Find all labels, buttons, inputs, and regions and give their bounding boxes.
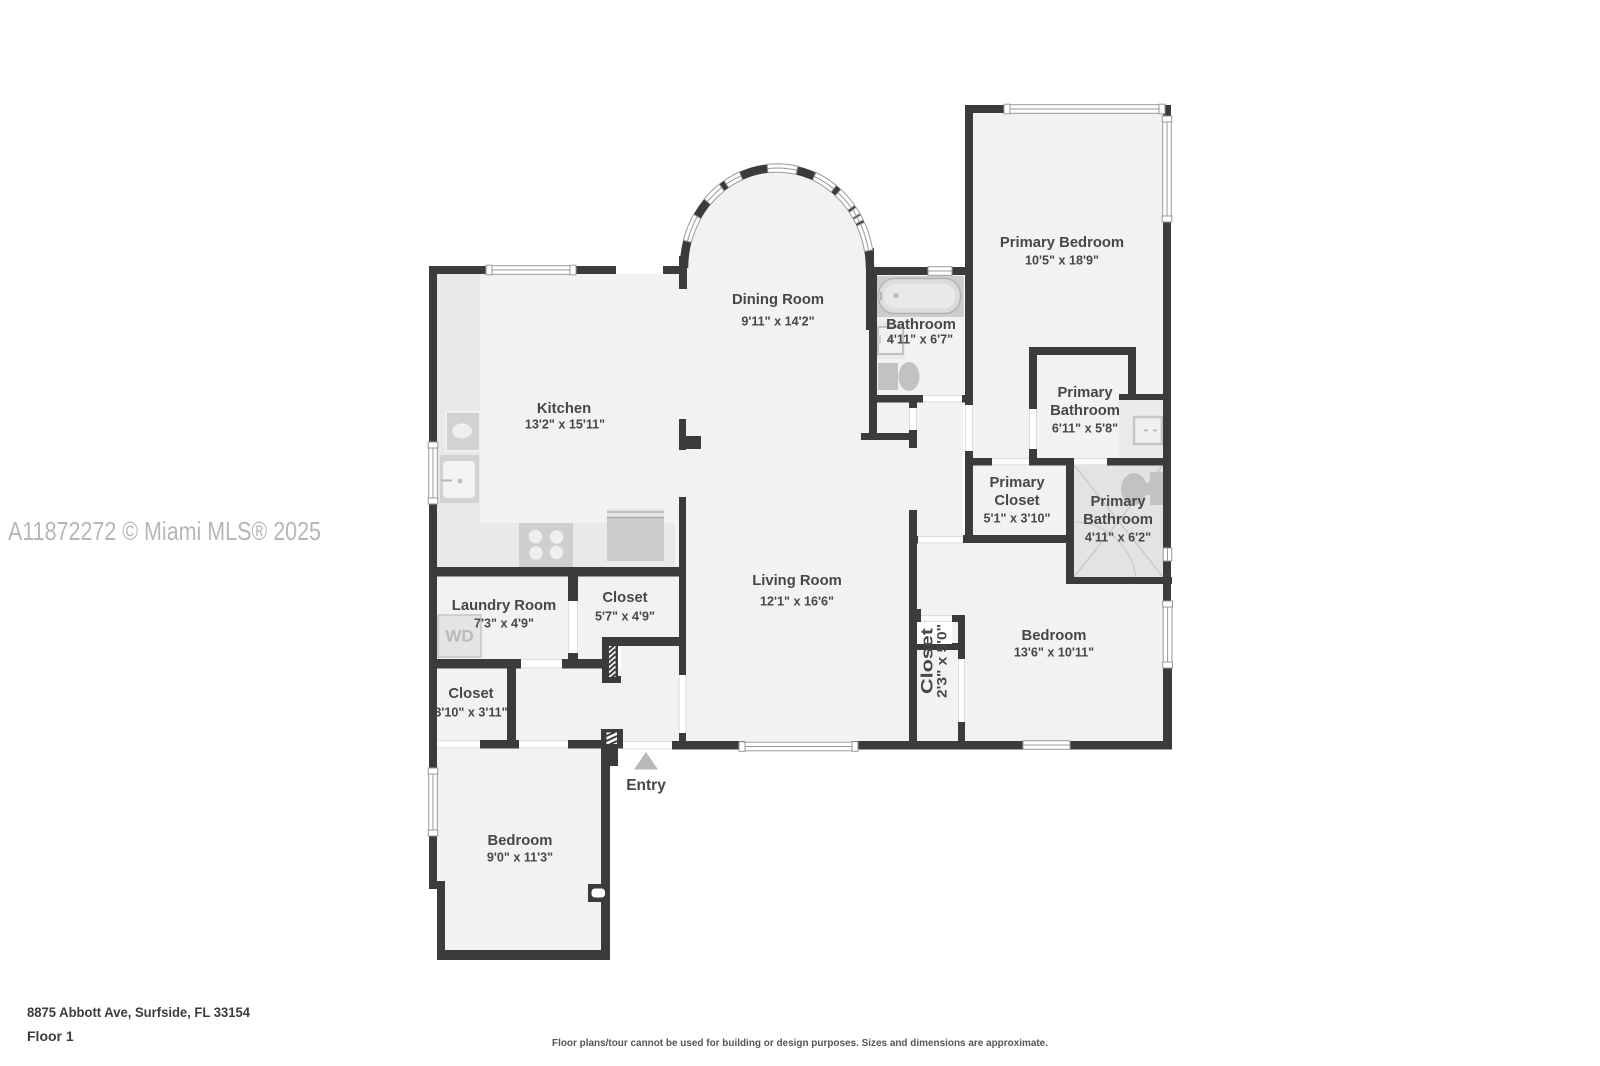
svg-text:12'1" x 16'6": 12'1" x 16'6" <box>760 594 834 608</box>
svg-text:6'11" x 5'8": 6'11" x 5'8" <box>1052 421 1118 435</box>
svg-text:5'7" x 4'9": 5'7" x 4'9" <box>595 609 655 623</box>
svg-text:Floor plans/tour cannot be use: Floor plans/tour cannot be used for buil… <box>552 1037 1048 1049</box>
svg-text:Bathroom: Bathroom <box>886 317 956 333</box>
svg-text:7'3" x 4'9": 7'3" x 4'9" <box>474 616 534 630</box>
svg-text:10'5" x 18'9": 10'5" x 18'9" <box>1025 253 1099 267</box>
svg-text:Closet: Closet <box>994 493 1039 509</box>
svg-text:Primary Bedroom: Primary Bedroom <box>1000 235 1124 251</box>
svg-text:Primary: Primary <box>1057 385 1113 401</box>
svg-text:2'3" x 5'0": 2'3" x 5'0" <box>935 624 950 698</box>
svg-text:Laundry Room: Laundry Room <box>452 598 556 614</box>
svg-text:4'11" x 6'2": 4'11" x 6'2" <box>1085 530 1151 544</box>
svg-text:Floor 1: Floor 1 <box>27 1028 74 1044</box>
svg-text:13'2" x 15'11": 13'2" x 15'11" <box>525 417 605 431</box>
svg-text:5'1" x 3'10": 5'1" x 3'10" <box>984 511 1051 525</box>
svg-text:3'10" x 3'11": 3'10" x 3'11" <box>434 705 507 719</box>
svg-text:Closet: Closet <box>602 590 647 606</box>
svg-text:Bedroom: Bedroom <box>488 833 553 849</box>
svg-text:4'11" x 6'7": 4'11" x 6'7" <box>887 332 953 346</box>
svg-text:13'6" x 10'11": 13'6" x 10'11" <box>1014 645 1094 659</box>
svg-text:Bedroom: Bedroom <box>1022 628 1087 644</box>
svg-text:Closet: Closet <box>448 686 493 702</box>
svg-text:WD: WD <box>445 626 473 645</box>
svg-text:Primary: Primary <box>1090 494 1146 510</box>
svg-text:Bathroom: Bathroom <box>1050 403 1120 419</box>
svg-text:Bathroom: Bathroom <box>1083 512 1153 528</box>
svg-text:A11872272 © Miami MLS® 2025: A11872272 © Miami MLS® 2025 <box>8 516 321 546</box>
svg-text:8875 Abbott Ave, Surfside, FL: 8875 Abbott Ave, Surfside, FL 33154 <box>27 1004 250 1020</box>
svg-text:9'11" x 14'2": 9'11" x 14'2" <box>741 314 814 328</box>
svg-text:Kitchen: Kitchen <box>537 401 591 417</box>
svg-text:Dining Room: Dining Room <box>732 292 824 308</box>
svg-text:Living Room: Living Room <box>752 573 842 589</box>
svg-text:Primary: Primary <box>989 475 1045 491</box>
svg-text:Entry: Entry <box>626 777 666 794</box>
svg-text:9'0" x 11'3": 9'0" x 11'3" <box>487 850 553 864</box>
